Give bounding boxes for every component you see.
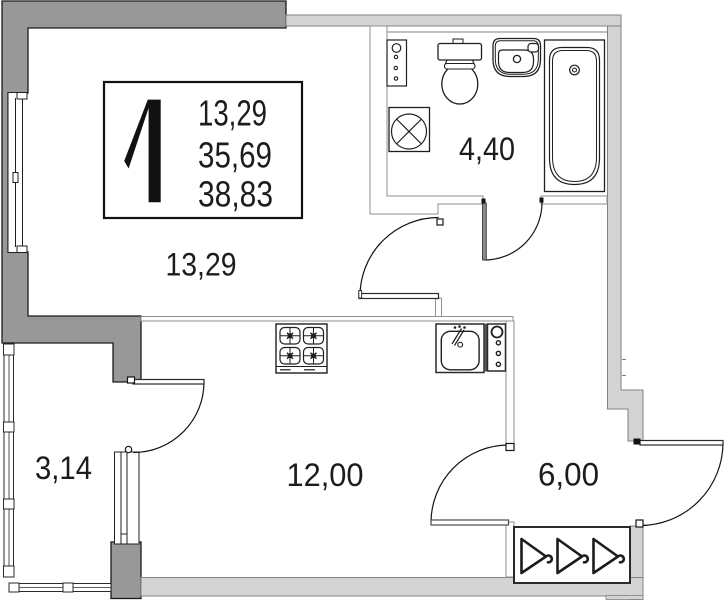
svg-text:13,29: 13,29 [166, 247, 237, 283]
svg-text:12,00: 12,00 [287, 457, 364, 493]
svg-text:4,40: 4,40 [459, 131, 515, 167]
svg-text:6,00: 6,00 [538, 457, 599, 493]
svg-text:3,14: 3,14 [35, 450, 92, 486]
svg-text:38,83: 38,83 [198, 174, 273, 215]
svg-text:35,69: 35,69 [198, 135, 272, 176]
svg-text:13,29: 13,29 [198, 93, 267, 134]
